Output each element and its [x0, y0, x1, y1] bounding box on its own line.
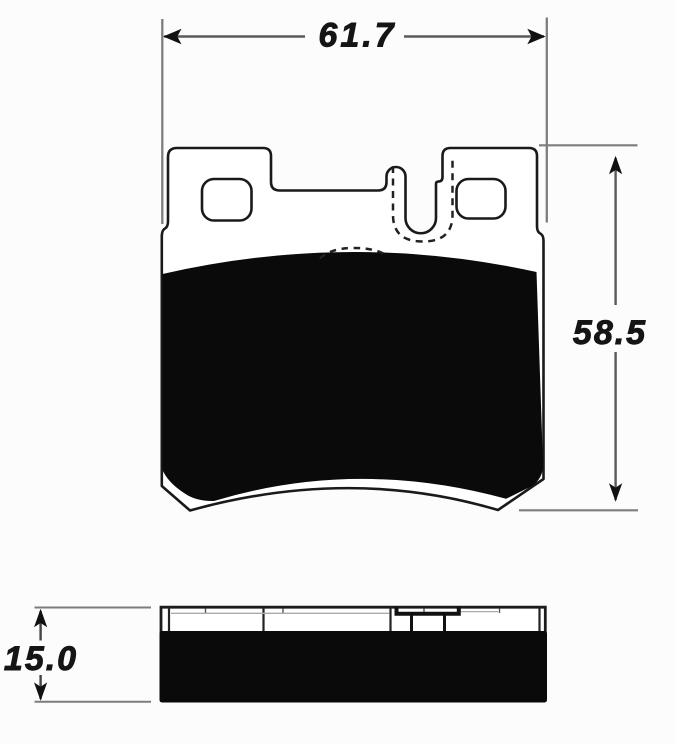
- svg-text:58.5: 58.5: [573, 314, 647, 352]
- svg-text:15.0: 15.0: [4, 640, 78, 678]
- svg-text:61.7: 61.7: [318, 17, 396, 55]
